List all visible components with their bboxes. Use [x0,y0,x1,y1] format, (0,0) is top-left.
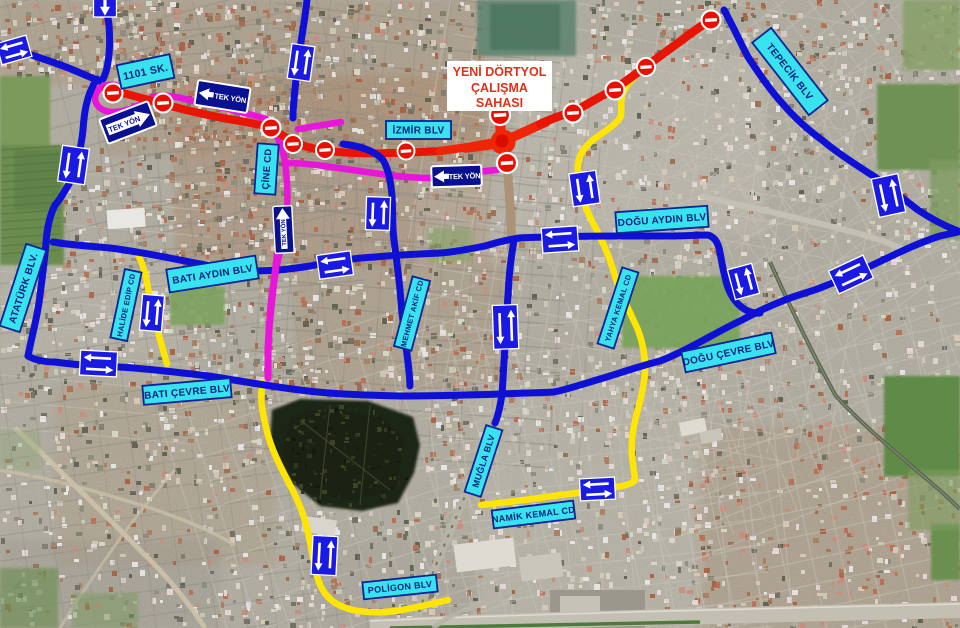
svg-text:İZMİR BLV: İZMİR BLV [393,124,445,137]
svg-text:SAHASI: SAHASI [476,96,523,110]
svg-text:TEK YÖN: TEK YÖN [280,219,288,246]
svg-text:TEK YÖN: TEK YÖN [448,171,480,181]
svg-text:ÇALIŞMA: ÇALIŞMA [471,81,528,95]
svg-text:YENİ DÖRTYOL: YENİ DÖRTYOL [453,64,547,79]
